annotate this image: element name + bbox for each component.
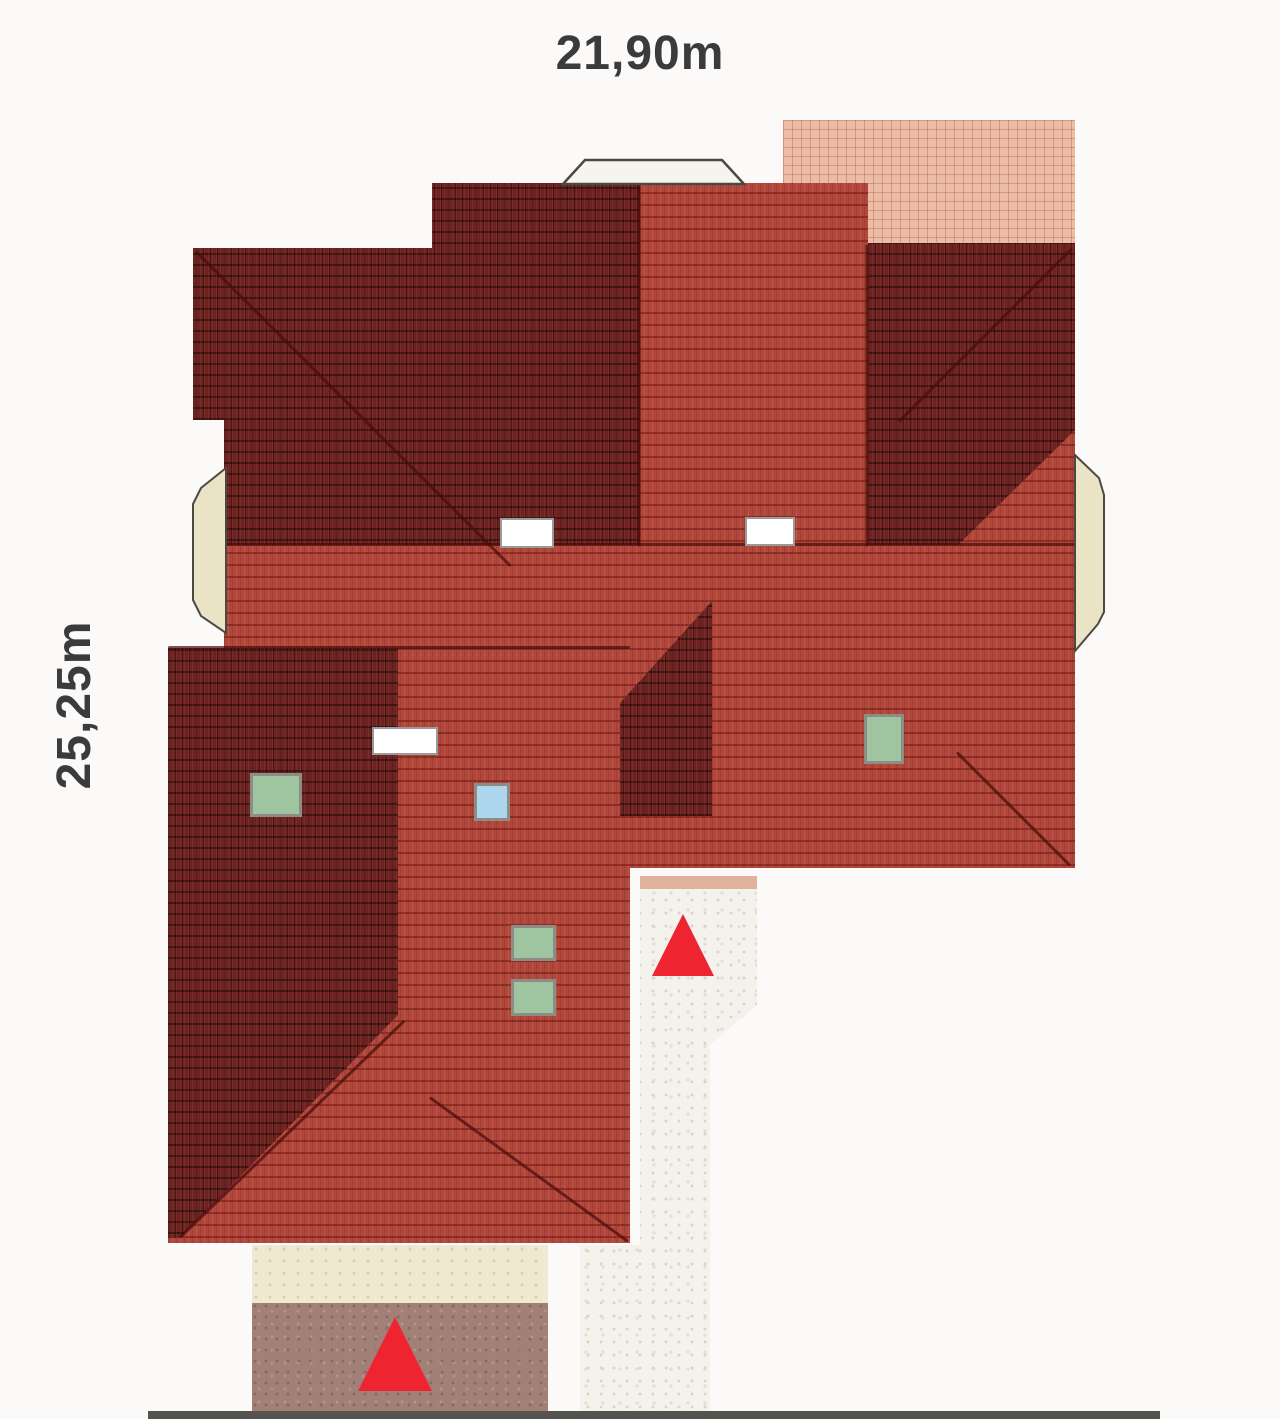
ridge-valley-right: [866, 245, 869, 547]
bay-window-right: [1075, 455, 1104, 651]
paving-strip: [252, 1245, 548, 1303]
width-dimension-label: 21,90m: [440, 26, 840, 81]
path-edge-strip: [640, 876, 757, 889]
skylight-blue: [474, 783, 510, 821]
roof-plan-canvas: 21,90m 25,25m: [0, 0, 1280, 1419]
chimney-1: [500, 518, 554, 548]
skylight-green-2: [864, 714, 904, 764]
ridge-line-main-horizontal: [226, 543, 1075, 546]
chimney-2: [745, 517, 795, 546]
skylight-green-1: [250, 773, 302, 817]
bay-window-top: [563, 160, 744, 184]
bottom-border-bar: [148, 1411, 1160, 1419]
lower-terrace: [252, 1303, 548, 1412]
bay-window-left: [193, 468, 226, 633]
skylight-green-4: [511, 979, 556, 1016]
ridge-valley-left: [638, 185, 641, 547]
height-dimension-label: 25,25m: [47, 555, 103, 855]
skylight-green-3: [511, 925, 556, 961]
ridge-line-eave-middle: [168, 646, 630, 649]
chimney-3: [372, 727, 438, 755]
